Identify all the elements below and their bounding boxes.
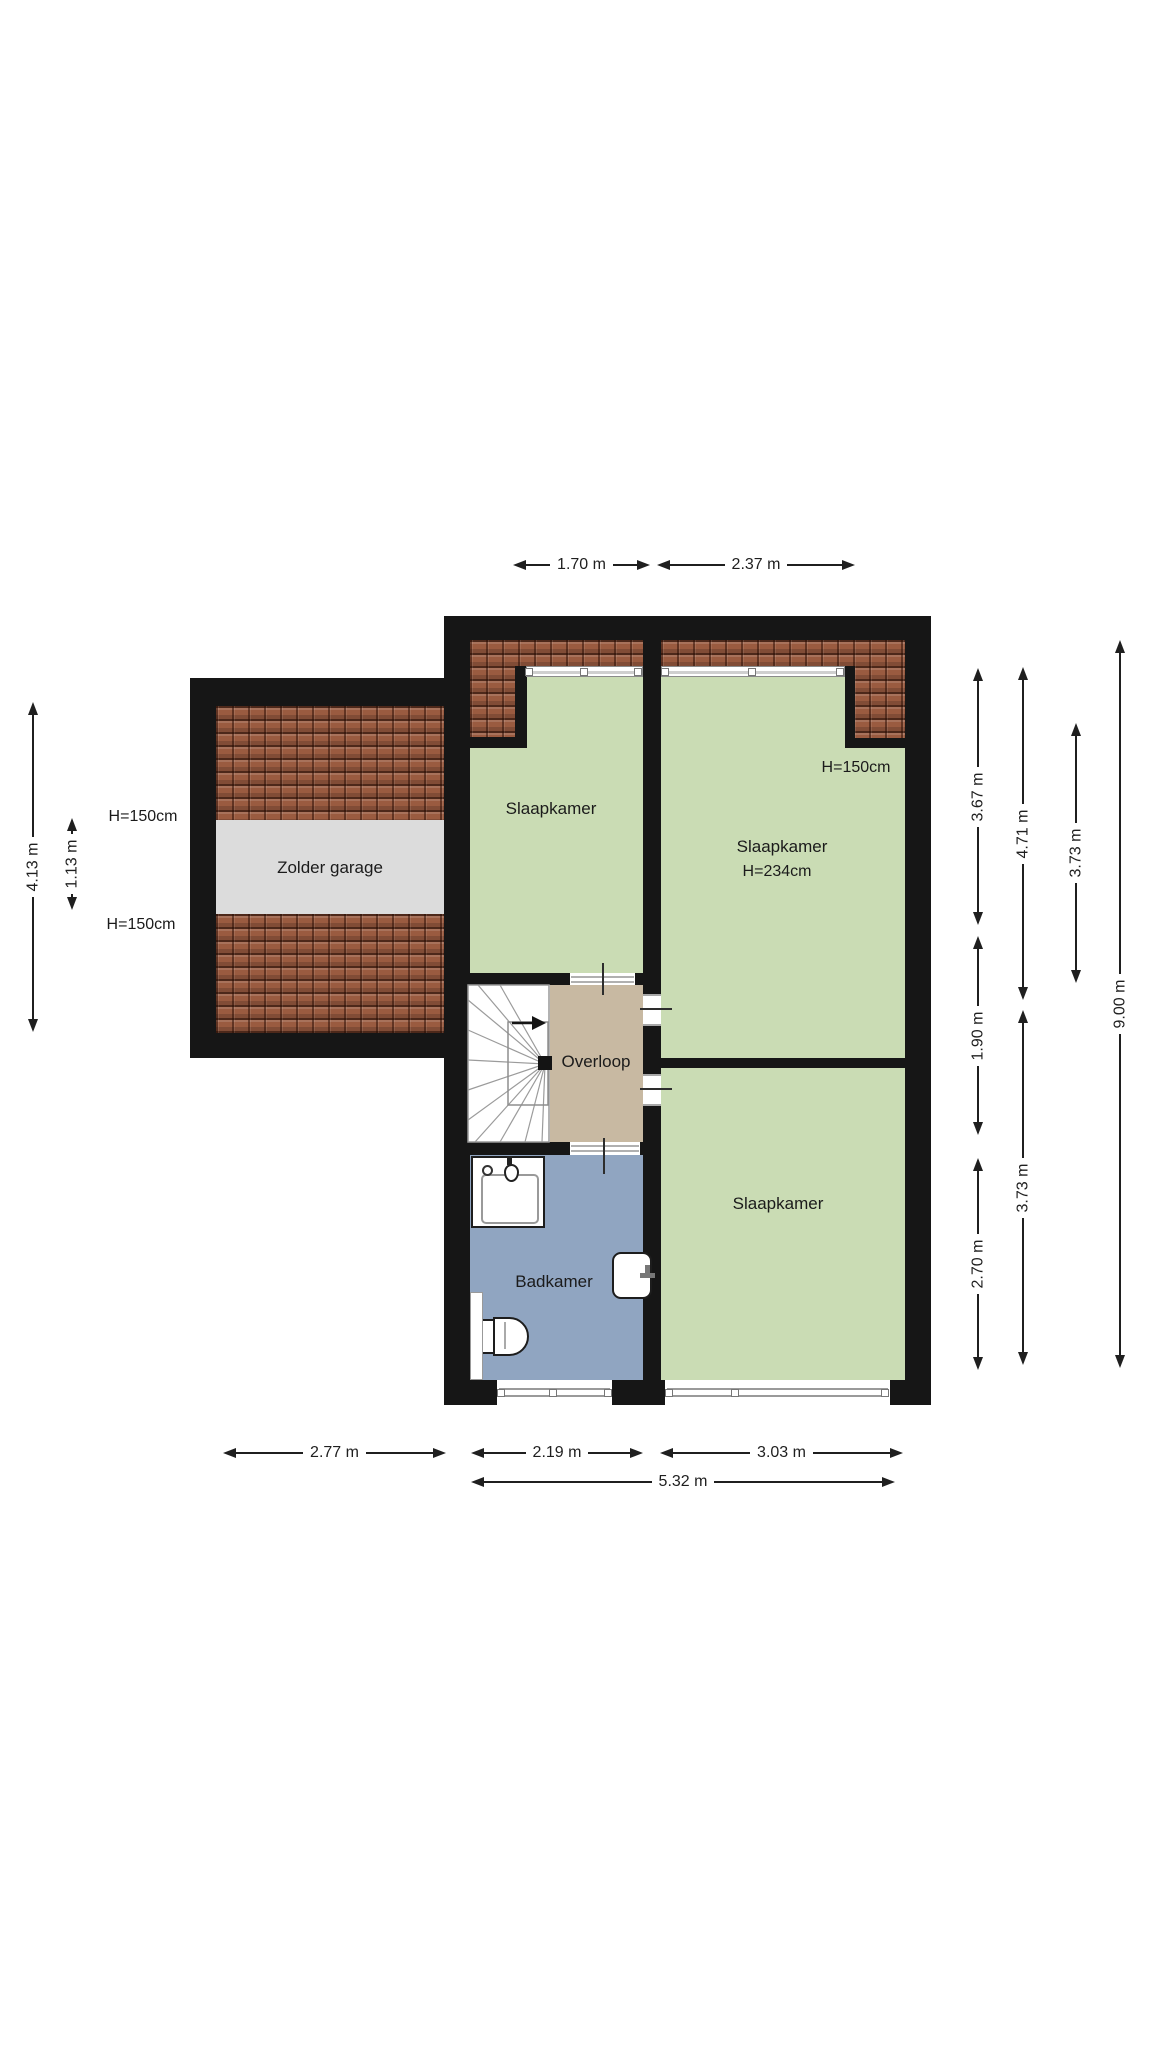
dim-label-slot: 9.00 m: [1096, 974, 1145, 1034]
dim-right-seg-mid: 1.90 m: [969, 936, 987, 1135]
dim-line: [484, 1452, 526, 1454]
stairs-top-wall: [635, 973, 643, 985]
door-tick: [603, 1138, 605, 1174]
window-glass-line: [667, 1388, 888, 1390]
dim-label: 4.13 m: [24, 843, 42, 892]
arrowhead-right-icon: [890, 1448, 903, 1458]
dim-label: 3.03 m: [750, 1446, 813, 1460]
door-opening-badkamer: [570, 1142, 640, 1155]
arrowhead-down-icon: [973, 1357, 983, 1370]
garage-bottom-wall: [190, 1033, 444, 1058]
arrowhead-left-icon: [657, 560, 670, 570]
toilet-seat-line: [504, 1322, 506, 1349]
arrowhead-down-icon: [973, 1122, 983, 1135]
arrowhead-up-icon: [1018, 1010, 1028, 1023]
dim-line: [1022, 680, 1024, 804]
stair-newel-post: [538, 1056, 552, 1070]
arrowhead-left-icon: [223, 1448, 236, 1458]
dim-top-window-left: 1.70 m: [513, 558, 650, 572]
dim-label: 2.70 m: [969, 1240, 987, 1289]
dim-label: 1.70 m: [550, 558, 613, 572]
arrowhead-down-icon: [973, 912, 983, 925]
window-jamb: [634, 668, 642, 676]
dim-line: [977, 1294, 979, 1357]
room-label-slaapkamer-ne: Slaapkamer: [737, 837, 828, 857]
staircase: [466, 983, 554, 1145]
dormer-knee-wall-ne: [845, 666, 855, 748]
bedroom-divider-wall: [661, 1058, 905, 1068]
dim-label: 3.67 m: [969, 772, 987, 821]
main-right-wall: [905, 616, 931, 1405]
door-jamb-line: [643, 1024, 661, 1026]
dim-bottom-garage: 2.77 m: [223, 1446, 446, 1460]
room-label-zolder-garage: Zolder garage: [277, 858, 383, 878]
arrowhead-down-icon: [67, 897, 77, 910]
dim-label: 5.32 m: [652, 1475, 715, 1489]
dim-label-slot: 1.13 m: [48, 834, 97, 894]
arrowhead-right-icon: [842, 560, 855, 570]
window-jamb: [497, 1389, 505, 1397]
knee-wall-height-label-ne: H=150cm: [822, 759, 891, 777]
dim-label-slot: 2.70 m: [954, 1234, 1003, 1294]
arrowhead-left-icon: [660, 1448, 673, 1458]
dim-right-slaapkamer-ne-depth: 3.73 m: [1067, 723, 1085, 983]
door-jamb-line: [643, 1074, 661, 1076]
washbasin-tap-icon: [645, 1265, 650, 1274]
arrowhead-down-icon: [1018, 987, 1028, 1000]
dim-line: [977, 681, 979, 767]
room-label-slaapkamer-se: Slaapkamer: [733, 1194, 824, 1214]
arrowhead-up-icon: [1115, 640, 1125, 653]
arrowhead-down-icon: [1071, 970, 1081, 983]
shower-tray: [471, 1156, 545, 1228]
dim-line: [484, 1481, 652, 1483]
room-label-badkamer: Badkamer: [515, 1272, 592, 1292]
roof-notch-nw: [470, 640, 515, 737]
arrowhead-down-icon: [1115, 1355, 1125, 1368]
dim-right-col2-bottom: 3.73 m: [1014, 1010, 1032, 1365]
arrowhead-up-icon: [973, 1158, 983, 1171]
arrowhead-down-icon: [1018, 1352, 1028, 1365]
dim-top-window-right: 2.37 m: [657, 558, 855, 572]
dim-line: [526, 564, 550, 566]
slaapkamer-se-floor: [661, 1068, 905, 1380]
wall-niche: [470, 1292, 483, 1380]
dim-label-slot: 3.73 m: [999, 1158, 1048, 1218]
garage-top-wall: [190, 678, 444, 706]
dim-bottom-slaapkamer: 3.03 m: [660, 1446, 903, 1460]
door-sill-line: [571, 1150, 639, 1152]
shower-drain-icon: [482, 1165, 493, 1176]
arrowhead-up-icon: [28, 702, 38, 715]
arrowhead-up-icon: [1071, 723, 1081, 736]
door-jamb-line: [643, 1104, 661, 1106]
dim-line: [714, 1481, 882, 1483]
dim-line: [32, 897, 34, 1019]
arrowhead-down-icon: [28, 1019, 38, 1032]
dim-line: [813, 1452, 890, 1454]
slaapkamer-se-window: [665, 1382, 890, 1404]
arrowhead-left-icon: [471, 1477, 484, 1487]
dim-line: [1119, 653, 1121, 974]
room-label-overloop: Overloop: [562, 1052, 631, 1072]
door-jamb-line: [643, 994, 661, 996]
dormer-knee-wall-ne: [845, 738, 906, 748]
dim-line: [787, 564, 842, 566]
window-jamb: [836, 668, 844, 676]
dim-label-slot: 3.73 m: [1052, 823, 1101, 883]
dim-label-slot: 1.90 m: [954, 1006, 1003, 1066]
dim-line: [1022, 1218, 1024, 1353]
dim-line: [977, 949, 979, 1006]
arrowhead-right-icon: [882, 1477, 895, 1487]
dormer-knee-wall-nw: [470, 737, 527, 748]
dim-line: [1119, 1034, 1121, 1355]
dim-line: [588, 1452, 630, 1454]
arrowhead-left-icon: [471, 1448, 484, 1458]
dim-label-slot: 3.67 m: [954, 767, 1003, 827]
window-glass-line: [667, 1395, 888, 1397]
roof-notch-ne: [853, 640, 905, 738]
window-jamb: [549, 1389, 557, 1397]
door-tick: [640, 1008, 672, 1010]
arrowhead-up-icon: [973, 936, 983, 949]
dim-label: 3.73 m: [1067, 829, 1085, 878]
dim-line: [236, 1452, 303, 1454]
floor-plan: Zolder garage Slaapkamer Slaapkamer H=23…: [0, 0, 1152, 2048]
washbasin: [612, 1252, 652, 1299]
main-top-wall: [444, 616, 931, 640]
knee-wall-height-label-garage-top: H=150cm: [109, 808, 178, 826]
dim-label: 1.90 m: [969, 1011, 987, 1060]
dim-left-attic-band: 1.13 m: [63, 818, 81, 910]
knee-wall-height-label-garage-bottom: H=150cm: [107, 916, 176, 934]
door-tick: [602, 963, 604, 995]
dim-label: 2.19 m: [526, 1446, 589, 1460]
arrowhead-right-icon: [433, 1448, 446, 1458]
dim-label: 9.00 m: [1111, 980, 1129, 1029]
garage-left-wall: [190, 678, 216, 1058]
dim-label: 2.77 m: [303, 1446, 366, 1460]
dormer-knee-wall-nw: [515, 666, 527, 748]
arrowhead-up-icon: [67, 818, 77, 831]
window-jamb: [748, 668, 756, 676]
dim-label: 1.13 m: [63, 840, 81, 889]
dim-line: [977, 1171, 979, 1234]
dim-line: [32, 715, 34, 837]
arrowhead-up-icon: [1018, 667, 1028, 680]
dim-label-slot: 4.71 m: [999, 804, 1048, 864]
window-jamb: [661, 668, 669, 676]
window-jamb: [731, 1389, 739, 1397]
dim-line: [673, 1452, 750, 1454]
dim-label: 4.71 m: [1014, 809, 1032, 858]
arrowhead-left-icon: [513, 560, 526, 570]
door-tick: [640, 1088, 672, 1090]
dim-right-seg-bottom: 2.70 m: [969, 1158, 987, 1370]
dim-line: [613, 564, 637, 566]
dim-right-col2-top: 4.71 m: [1014, 667, 1032, 1000]
dim-line: [670, 564, 725, 566]
dim-left-garage-depth: 4.13 m: [24, 702, 42, 1032]
dim-line: [1022, 1023, 1024, 1158]
window-jamb: [881, 1389, 889, 1397]
room-label-slaapkamer-nw: Slaapkamer: [506, 799, 597, 819]
dim-line: [366, 1452, 433, 1454]
dim-line: [977, 1066, 979, 1123]
door-sill-line: [571, 1145, 639, 1147]
dim-right-seg-top: 3.67 m: [969, 668, 987, 925]
dim-line: [977, 827, 979, 913]
ceiling-height-label: H=234cm: [743, 863, 812, 881]
dim-line: [1075, 736, 1077, 823]
dim-line: [1022, 864, 1024, 988]
arrowhead-right-icon: [630, 1448, 643, 1458]
central-divider-wall: [643, 616, 661, 995]
dim-bottom-total: 5.32 m: [471, 1475, 895, 1489]
arrowhead-up-icon: [973, 668, 983, 681]
main-bottom-wall-segment: [890, 1380, 931, 1405]
dim-line: [1075, 883, 1077, 970]
dim-label: 3.73 m: [1014, 1163, 1032, 1212]
dim-bottom-badkamer: 2.19 m: [471, 1446, 643, 1460]
window-jamb: [604, 1389, 612, 1397]
arrowhead-right-icon: [637, 560, 650, 570]
central-divider-wall: [643, 1025, 661, 1075]
dim-right-total-depth: 9.00 m: [1111, 640, 1129, 1368]
window-jamb: [580, 668, 588, 676]
window-jamb: [665, 1389, 673, 1397]
window-jamb: [525, 668, 533, 676]
dim-label: 2.37 m: [725, 558, 788, 572]
main-bottom-wall-segment: [444, 1380, 497, 1405]
